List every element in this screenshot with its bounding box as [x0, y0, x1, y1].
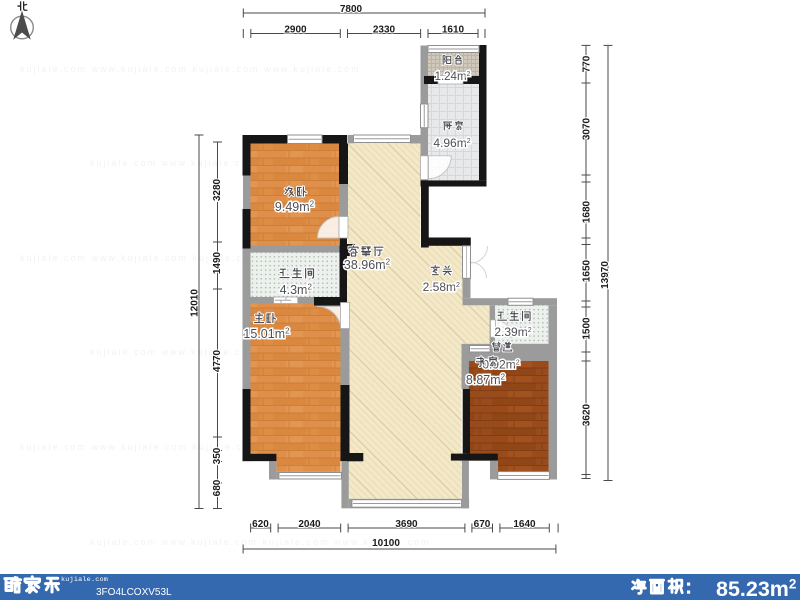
- svg-text:1610: 1610: [442, 25, 465, 36]
- svg-text:15.01m2: 15.01m2: [243, 327, 290, 341]
- svg-text:10100: 10100: [372, 538, 400, 549]
- svg-text:1.24m2: 1.24m2: [435, 71, 471, 83]
- svg-text:kujiale.com www.kujia: kujiale.com www.kujiale.com kujiale.com …: [20, 64, 361, 74]
- svg-text:3620: 3620: [582, 403, 593, 426]
- svg-text:1490: 1490: [212, 251, 223, 274]
- svg-text:3070: 3070: [582, 117, 593, 140]
- svg-text:kujiale.com: kujiale.com: [61, 576, 108, 584]
- svg-text:620: 620: [252, 519, 269, 530]
- svg-text:3280: 3280: [212, 178, 223, 201]
- svg-text:350: 350: [212, 447, 223, 464]
- svg-text:4770: 4770: [212, 349, 223, 372]
- svg-text:38.96m2: 38.96m2: [344, 258, 391, 272]
- svg-text:1650: 1650: [582, 259, 593, 282]
- svg-text:1640: 1640: [513, 519, 536, 530]
- svg-text:670: 670: [474, 519, 491, 530]
- svg-text:680: 680: [212, 479, 223, 496]
- svg-text:12010: 12010: [190, 289, 201, 317]
- svg-text:2330: 2330: [373, 25, 396, 36]
- svg-text:8.87m2: 8.87m2: [466, 373, 506, 387]
- svg-text:0.92m2: 0.92m2: [482, 358, 519, 372]
- svg-text:2900: 2900: [284, 25, 307, 36]
- svg-text:770: 770: [582, 55, 593, 72]
- svg-text:2040: 2040: [298, 519, 321, 530]
- svg-text:1500: 1500: [582, 317, 593, 340]
- svg-text:13970: 13970: [600, 261, 611, 289]
- svg-text:7800: 7800: [340, 4, 363, 15]
- svg-text:3690: 3690: [395, 519, 418, 530]
- svg-text:3FO4LCOXV53L: 3FO4LCOXV53L: [96, 587, 172, 598]
- svg-text:9.49m2: 9.49m2: [275, 200, 315, 214]
- svg-text:2.39m2: 2.39m2: [494, 325, 531, 339]
- svg-text:4.96m2: 4.96m2: [433, 136, 470, 150]
- svg-text:85.23m2: 85.23m2: [716, 577, 796, 600]
- svg-text:2.58m2: 2.58m2: [423, 280, 460, 294]
- svg-text:1680: 1680: [582, 200, 593, 223]
